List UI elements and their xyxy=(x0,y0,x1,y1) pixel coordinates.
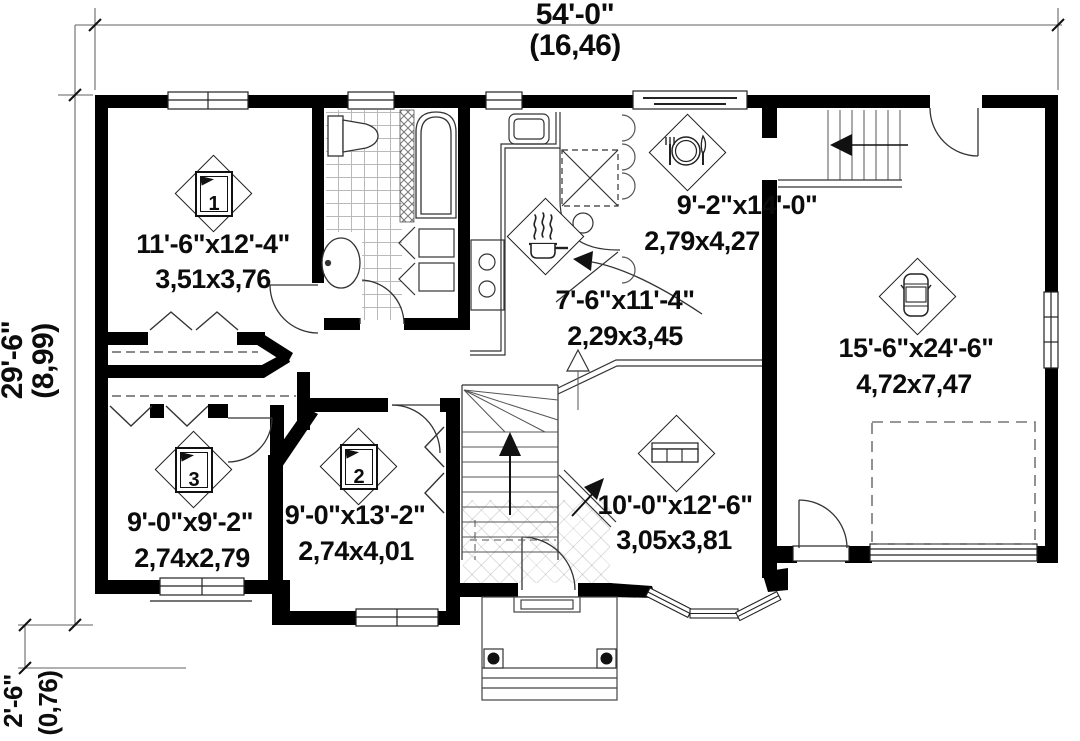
door-bedroom3 xyxy=(228,418,272,462)
garage-back-door-opening xyxy=(930,95,982,108)
window-bathroom xyxy=(348,92,394,109)
tub-surround xyxy=(400,110,414,222)
dim-height-imperial: 29'-6" xyxy=(0,275,28,445)
bedroom2-number: 2 xyxy=(342,467,376,487)
window-bedroom3 xyxy=(150,578,252,601)
living-size-metric: 3,05x3,81 xyxy=(544,527,804,554)
bay-window xyxy=(646,588,781,621)
floor-plan: 54'-0" (16,46) 29'-6" (8,99) 2'-6" (0,76… xyxy=(0,0,1080,741)
window-bedroom2 xyxy=(356,609,438,626)
bed-icon: 1 xyxy=(195,171,233,217)
bifold-door-icon xyxy=(425,427,444,467)
door-bathroom xyxy=(360,280,404,324)
garage-staircase xyxy=(778,110,908,187)
car-icon xyxy=(895,271,937,319)
linen-closet xyxy=(399,227,454,295)
bifold-door-icon xyxy=(166,406,208,426)
dining-size-imperial: 9'-2"x14'-0" xyxy=(617,192,877,219)
stair-up-arrow xyxy=(499,432,521,515)
garage-vehicle-door xyxy=(870,544,1037,561)
hall-up-arrow xyxy=(567,350,589,410)
front-porch xyxy=(482,597,617,700)
window-garage-right xyxy=(1044,292,1058,368)
dim-width-metric: (16,46) xyxy=(425,31,725,61)
front-door-opening xyxy=(518,583,578,597)
bedroom1-size-imperial: 11'-6"x12'-4" xyxy=(83,231,343,258)
window-kitchen xyxy=(486,92,522,109)
window-bedroom1 xyxy=(168,92,248,109)
cooktop-icon xyxy=(562,150,618,206)
bifold-door-icon xyxy=(110,406,152,426)
bifold-door-icon xyxy=(196,312,238,330)
bedroom3-number: 3 xyxy=(177,470,211,490)
bifold-door-icon xyxy=(150,312,192,330)
garage-size-metric: 4,72x7,47 xyxy=(784,371,1044,398)
bed-icon: 3 xyxy=(175,447,213,493)
bedroom2-size-imperial: 9'-0"x13'-2" xyxy=(225,502,485,529)
porch-posts xyxy=(484,649,616,668)
kitchen-size-metric: 2,29x3,45 xyxy=(495,323,755,350)
door-bedroom2 xyxy=(392,405,440,453)
window-dining xyxy=(633,91,747,109)
bedroom1-number: 1 xyxy=(197,194,231,214)
kitchen-sink-icon xyxy=(509,114,549,144)
garage-size-imperial: 15'-6"x24'-6" xyxy=(786,335,1046,362)
toilet-icon xyxy=(328,116,378,156)
bed-icon: 2 xyxy=(340,444,378,490)
garage-stair-arrow xyxy=(830,134,908,156)
dim-porch-imperial: 2'-6" xyxy=(0,646,26,741)
bathtub-icon xyxy=(416,112,456,218)
living-size-imperial: 10'-0"x12'-6" xyxy=(545,492,805,519)
dim-width-imperial: 54'-0" xyxy=(425,0,725,30)
dim-porch-metric: (0,76) xyxy=(35,648,61,741)
garage-details xyxy=(872,422,1035,544)
bedroom1-size-metric: 3,51x3,76 xyxy=(83,266,343,293)
door-garage-side xyxy=(799,500,847,548)
sofa-icon xyxy=(649,440,701,466)
plate-cutlery-icon xyxy=(662,130,710,172)
kitchen-size-imperial: 7'-6"x11'-4" xyxy=(495,287,755,314)
dining-size-metric: 2,79x4,27 xyxy=(572,228,832,255)
bedroom2-size-metric: 2,74x4,01 xyxy=(226,538,486,565)
cooking-pot-icon xyxy=(518,207,570,263)
dim-height-metric: (8,99) xyxy=(29,276,59,446)
door-garage-back xyxy=(930,108,978,156)
garage-door-overhead-line xyxy=(872,422,1035,544)
